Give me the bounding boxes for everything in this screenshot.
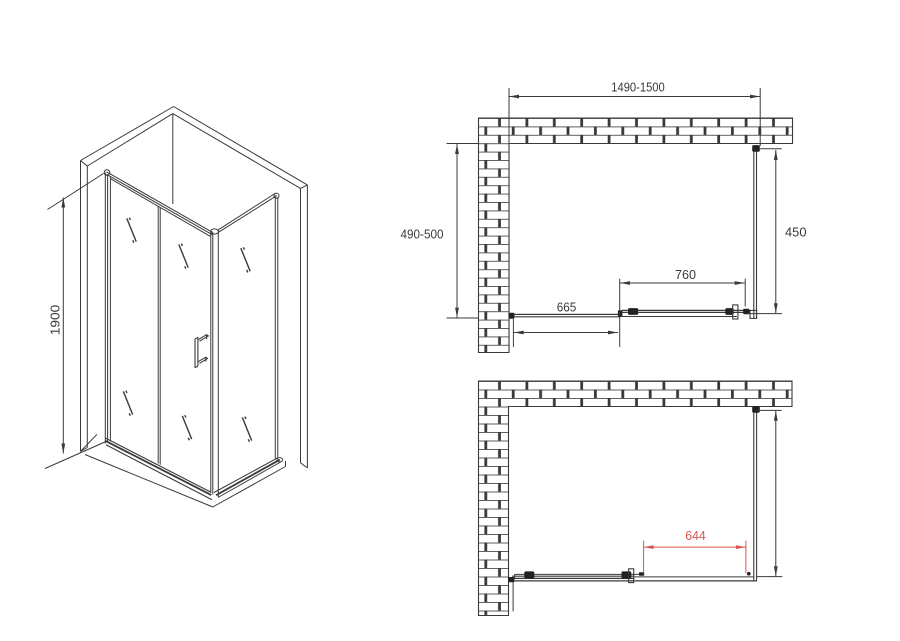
- svg-text:490-500: 490-500: [401, 228, 444, 242]
- svg-text:644: 644: [685, 529, 706, 543]
- svg-text:665: 665: [557, 300, 577, 314]
- svg-text:450: 450: [785, 226, 807, 240]
- svg-text:1490-1500: 1490-1500: [611, 81, 665, 95]
- svg-text:760: 760: [675, 268, 696, 282]
- svg-text:1900: 1900: [49, 305, 63, 336]
